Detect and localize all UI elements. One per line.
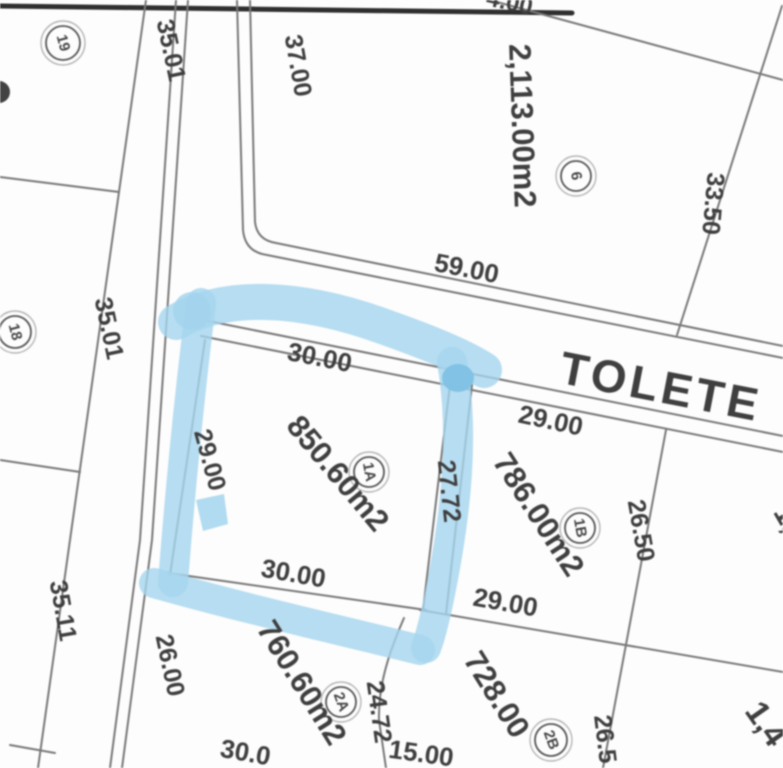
dimension-label: 29.00 xyxy=(471,582,540,623)
street-name: TOLETE xyxy=(556,341,767,431)
highlight-square-blob xyxy=(196,494,228,531)
lot-marker-19: 19 xyxy=(41,21,85,65)
lot-marker-6: 6 xyxy=(556,156,596,196)
area-label-lot-2b: 728.00 xyxy=(457,645,537,744)
lot18-lower-boundary xyxy=(0,460,80,472)
partial-dimension: 30.0 xyxy=(218,733,273,768)
partial-area-label: 1, xyxy=(767,499,783,537)
partial-dimension: 26.5 xyxy=(588,713,622,765)
road-dimension: 35.01 xyxy=(89,295,129,362)
plat-map-svg: 191861A1B2A2B TOLETE2,113.00m2850.60m278… xyxy=(0,0,783,768)
lot-number: 6 xyxy=(567,170,585,181)
dimension-label: 26.00 xyxy=(150,632,190,699)
partial-dimension: 15.00 xyxy=(387,734,456,768)
lot-number: 18 xyxy=(5,322,26,343)
lot-number: 19 xyxy=(53,33,74,54)
lot-number: 2B xyxy=(540,728,563,752)
top-right-diagonal-line xyxy=(497,2,783,80)
lot19-lot18-boundary xyxy=(0,177,119,192)
survey-map: 191861A1B2A2B TOLETE2,113.00m2850.60m278… xyxy=(0,0,783,768)
bottom-left-short-boundary xyxy=(10,745,55,753)
partial-dimension: 4.00 xyxy=(484,0,535,21)
road-dimension: 35.11 xyxy=(44,578,82,643)
partial-dark-circle xyxy=(0,81,10,103)
dimension-label: 26.50 xyxy=(622,497,660,563)
partial-area-label: 1,4 xyxy=(738,694,783,753)
road-dimension: 35.01 xyxy=(151,17,191,84)
dimension-label: 59.00 xyxy=(432,247,502,289)
road-left-edge xyxy=(38,0,146,768)
area-label-lot-6: 2,113.00m2 xyxy=(502,43,543,208)
dimension-label: 30.00 xyxy=(285,336,355,378)
dimension-label: 27.72 xyxy=(432,459,466,524)
highlight-dark-overlap-spot xyxy=(442,364,474,392)
dimension-label: 33.50 xyxy=(696,171,729,236)
dimension-label: 37.00 xyxy=(279,32,317,98)
dimension-label: 29.00 xyxy=(516,399,586,442)
lot-marker-18: 18 xyxy=(0,311,36,353)
